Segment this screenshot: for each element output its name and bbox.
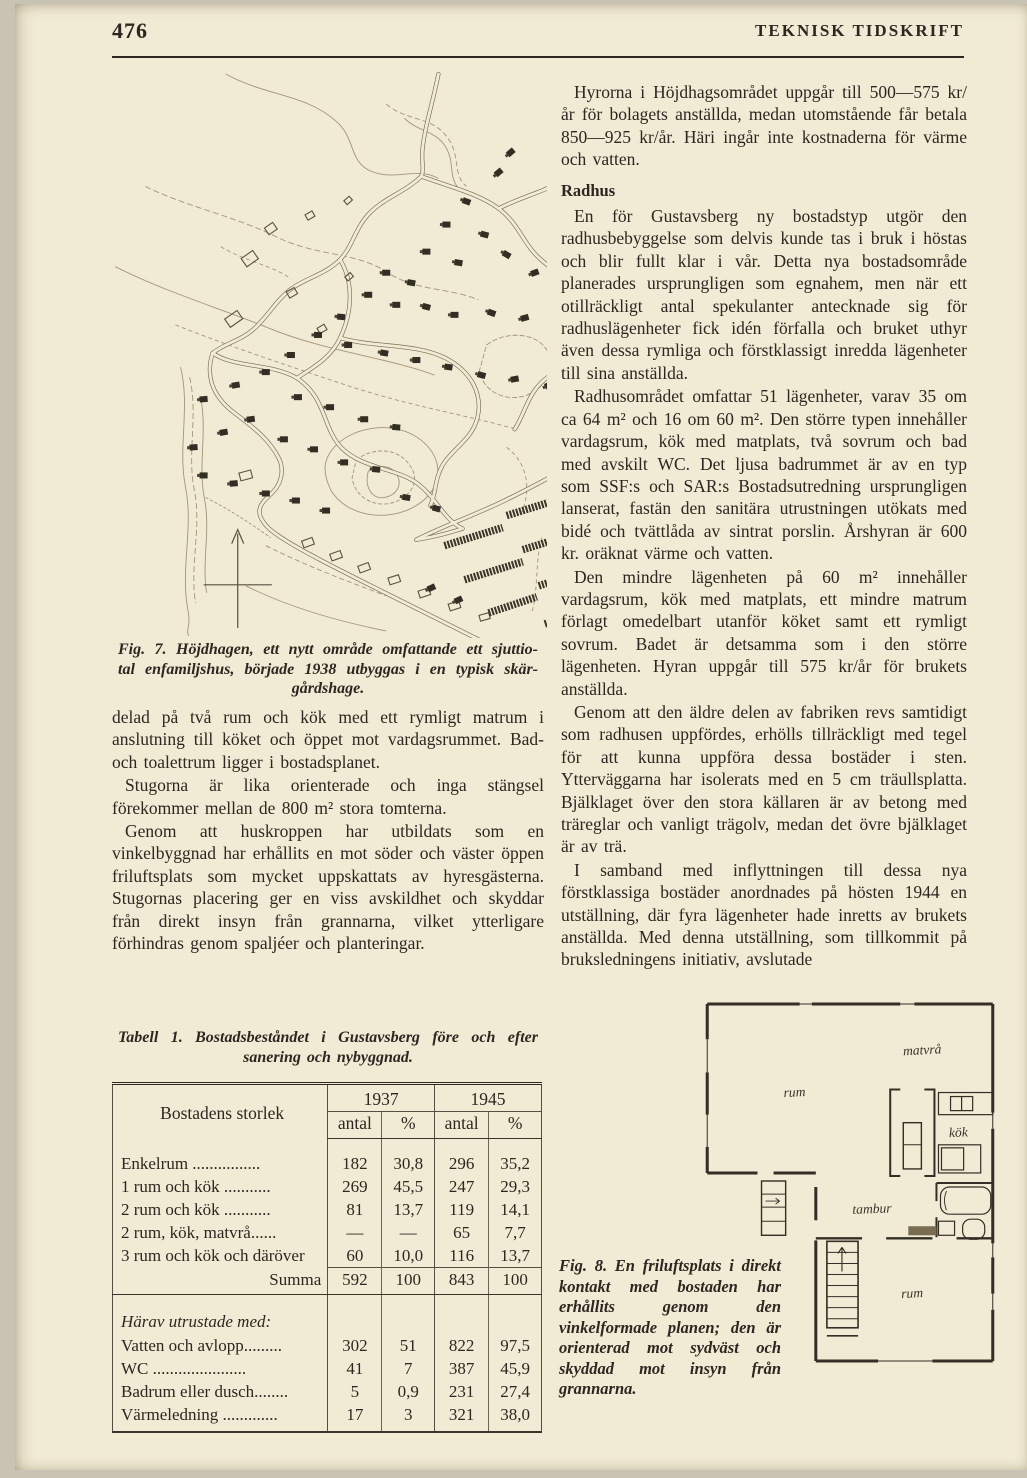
table-row: Badrum eller dusch........ 5 0,9 231 27,…	[113, 1380, 542, 1403]
paragraph: Radhusområdet omfattar 51 lägenheter, va…	[561, 385, 967, 564]
doormat	[908, 1226, 936, 1235]
table-row: Vatten och avlopp......... 302 51 822 97…	[113, 1334, 542, 1357]
sub-header: antal	[328, 1112, 382, 1139]
housing-stock-table: Bostadens storlek 1937 1945 antal % anta…	[112, 1082, 542, 1433]
room-label-tambur: tambur	[852, 1200, 892, 1216]
table-caption-line: sanering och nybyggnad.	[118, 1048, 538, 1068]
header-rule	[112, 56, 964, 58]
road-casings	[210, 74, 547, 638]
room-labels: matvrå rum kök tambur rum	[783, 1041, 969, 1301]
sub-header: %	[489, 1112, 542, 1139]
planned-house-outlines	[225, 196, 491, 638]
year-header: 1945	[435, 1084, 542, 1112]
fig7-site-map	[85, 66, 547, 638]
section-heading: Radhus	[561, 180, 967, 202]
table-row: 2 rum och kök ........... 81 13,7 119 14…	[113, 1198, 542, 1221]
fig8-caption: Fig. 8. En friluftsplats i direkt kontak…	[559, 1256, 781, 1400]
right-column-text: Hyrorna i Höjdhagsområdet uppgår till 50…	[561, 81, 967, 972]
table-row: WC ...................... 41 7 387 45,9	[113, 1357, 542, 1380]
paragraph: Hyrorna i Höjdhagsområdet uppgår till 50…	[561, 81, 967, 171]
paragraph: Den mindre lägenheten på 60 m² innehålle…	[561, 566, 967, 700]
sub-header: %	[382, 1112, 435, 1139]
left-column-text: delad på två rum och kök med ett rymligt…	[112, 706, 544, 955]
paragraph: En för Gustavsberg ny bostadstyp utgör d…	[561, 205, 967, 384]
table-row: Värmeledning ............. 17 3 321 38,0	[113, 1403, 542, 1432]
room-label-rum-lower: rum	[901, 1285, 924, 1301]
table-row: Enkelrum ................ 182 30,8 296 3…	[113, 1139, 542, 1176]
entrance-steps	[762, 1181, 786, 1235]
table-row: 1 rum och kök ........... 269 45,5 247 2…	[113, 1175, 542, 1198]
paragraph: Stugorna är lika orienterade och inga st…	[112, 774, 544, 819]
table-row: 3 rum och kök och däröver 60 10,0 116 13…	[113, 1244, 542, 1268]
room-label-rum-upper: rum	[783, 1084, 806, 1100]
fig7-caption: Fig. 7. Höjdhagen, ett nytt område omfat…	[118, 640, 538, 699]
staircase	[827, 1241, 858, 1336]
sub-header: antal	[435, 1112, 489, 1139]
journal-page: 476 TEKNISK TIDSKRIFT	[15, 4, 1027, 1470]
fig7-caption-line: tal enfamiljshus, började 1938 utbyggas …	[118, 660, 538, 680]
paragraph: I samband med inflyttningen till dessa n…	[561, 859, 967, 971]
north-arrow	[204, 530, 272, 628]
fig7-caption-line: gårdshage.	[118, 679, 538, 699]
road-fills	[210, 74, 547, 638]
table-caption: Tabell 1. Bostadsbeståndet i Gustavsberg…	[118, 1028, 538, 1067]
table-caption-line: Tabell 1. Bostadsbeståndet i Gustavsberg…	[118, 1028, 538, 1048]
page-number: 476	[112, 18, 148, 44]
room-label-kok: kök	[949, 1124, 970, 1140]
table-section-row: Härav utrustade med:	[113, 1295, 542, 1335]
fig7-caption-line: Fig. 7. Höjdhagen, ett nytt område omfat…	[118, 640, 538, 660]
site-map-drawing	[85, 66, 547, 638]
column-header: Bostadens storlek	[113, 1084, 328, 1139]
table-row: 2 rum, kök, matvrå...... — — 65 7,7	[113, 1221, 542, 1244]
table-summary-row: Summa 592 100 843 100	[113, 1268, 542, 1295]
room-label-matvra: matvrå	[903, 1041, 942, 1058]
paragraph: delad på två rum och kök med ett rymligt…	[112, 706, 544, 773]
interior-walls	[816, 1090, 993, 1239]
paragraph: Genom att huskroppen har utbildats som e…	[112, 820, 544, 954]
paragraph: Genom att den äldre delen av fabriken re…	[561, 701, 967, 858]
journal-title: TEKNISK TIDSKRIFT	[755, 21, 964, 41]
bathroom-fixtures	[938, 1187, 990, 1239]
year-header: 1937	[328, 1084, 435, 1112]
